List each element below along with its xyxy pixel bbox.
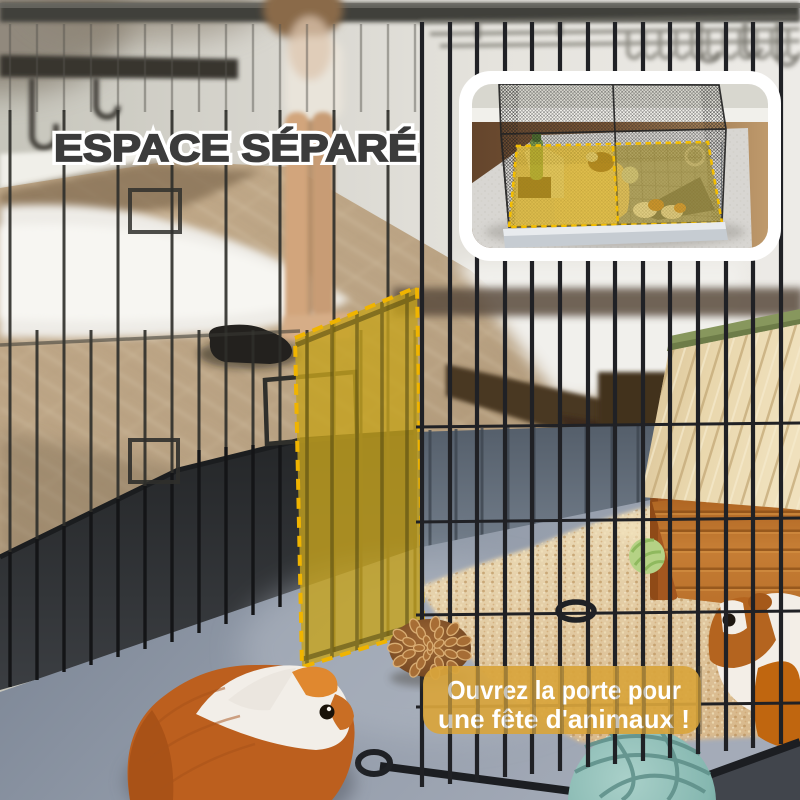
svg-text:ESPACE SÉPARÉ: ESPACE SÉPARÉ [54, 126, 417, 170]
